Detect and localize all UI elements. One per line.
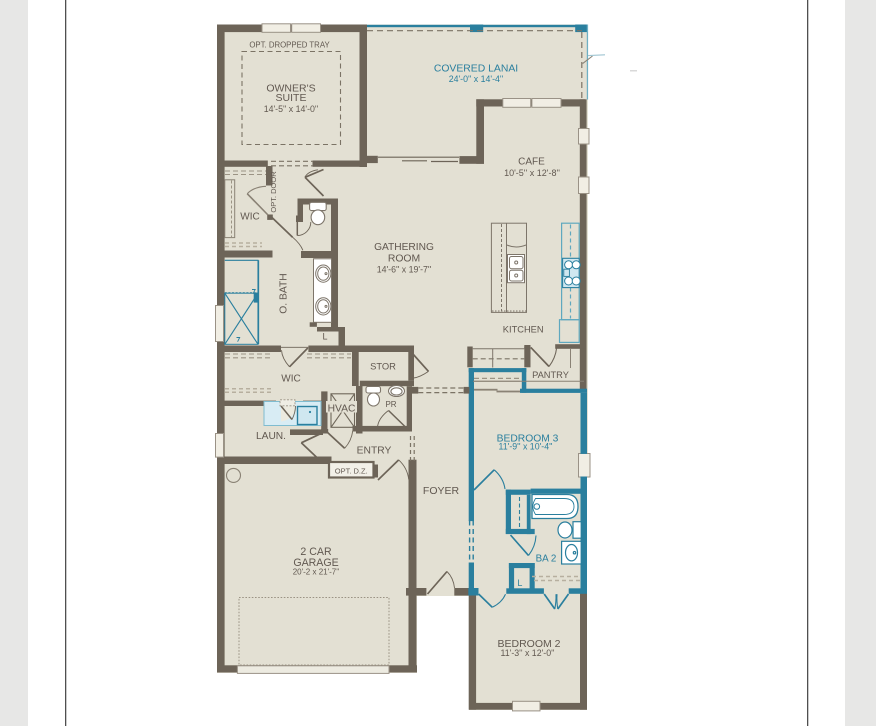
svg-text:ENTRY: ENTRY [357,446,392,457]
svg-text:LAUN.: LAUN. [256,431,286,442]
svg-text:OPT. DROPPED TRAY: OPT. DROPPED TRAY [249,40,330,49]
svg-text:24'-0'' x 14'-4'': 24'-0'' x 14'-4'' [449,74,504,84]
svg-text:BA 2: BA 2 [536,553,557,564]
svg-text:GATHERING: GATHERING [374,242,434,253]
svg-text:OPT. DOOR: OPT. DOOR [269,171,278,213]
svg-text:KITCHEN: KITCHEN [503,324,544,334]
svg-text:HVAC: HVAC [328,404,356,415]
svg-text:PR: PR [385,400,396,409]
svg-text:L: L [517,578,522,588]
svg-text:11'-3'' x 12'-0'': 11'-3'' x 12'-0'' [501,648,555,658]
svg-text:STOR: STOR [370,360,396,371]
svg-text:FOYER: FOYER [423,485,460,497]
svg-text:WIC: WIC [240,211,259,222]
svg-text:11'-9'' x 10'-4'': 11'-9'' x 10'-4'' [499,442,553,452]
svg-text:OPT. D.Z.: OPT. D.Z. [335,466,368,475]
svg-text:14'-5'' x 14'-0'': 14'-5'' x 14'-0'' [264,104,319,114]
svg-text:CAFE: CAFE [518,157,545,168]
svg-text:COVERED LANAI: COVERED LANAI [434,64,518,75]
svg-text:ROOM: ROOM [388,253,420,264]
svg-text:20'-2 x 21'-7'': 20'-2 x 21'-7'' [293,568,340,577]
svg-text:SUITE: SUITE [276,92,307,104]
svg-text:PANTRY: PANTRY [532,370,569,380]
svg-text:L: L [322,332,327,342]
svg-text:WIC: WIC [281,374,300,385]
svg-text:10'-5'' x 12'-8'': 10'-5'' x 12'-8'' [504,168,560,178]
svg-text:O. BATH: O. BATH [279,273,290,313]
svg-text:14'-6'' x 19'-7'': 14'-6'' x 19'-7'' [377,264,432,274]
